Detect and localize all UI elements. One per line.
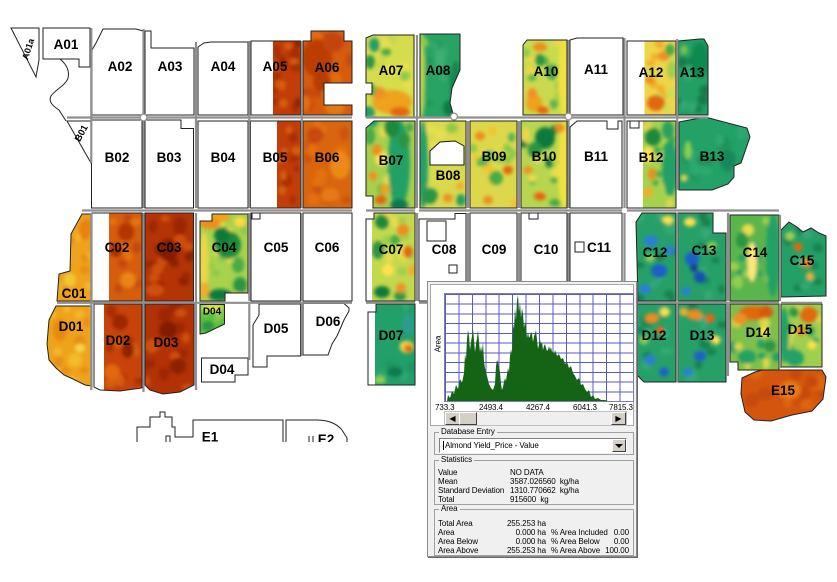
svg-text:D03: D03 (154, 335, 179, 350)
svg-text:D01: D01 (59, 319, 84, 334)
svg-text:D04: D04 (210, 362, 235, 377)
svg-text:D14: D14 (746, 325, 771, 340)
svg-text:D12: D12 (642, 328, 667, 343)
svg-text:C13: C13 (692, 243, 717, 258)
svg-text:C09: C09 (482, 242, 507, 257)
svg-text:C15: C15 (790, 253, 815, 268)
svg-text:D04: D04 (203, 307, 222, 318)
svg-text:D07: D07 (379, 328, 404, 343)
svg-text:D02: D02 (106, 333, 131, 348)
svg-text:A10: A10 (534, 64, 559, 79)
svg-text:C07: C07 (379, 242, 404, 257)
svg-text:A05: A05 (263, 59, 288, 74)
svg-text:C05: C05 (264, 240, 289, 255)
svg-text:A13: A13 (680, 65, 705, 80)
svg-text:C08: C08 (432, 242, 457, 257)
svg-text:E15: E15 (771, 383, 796, 398)
svg-text:D06: D06 (316, 314, 341, 329)
svg-text:B09: B09 (482, 149, 507, 164)
svg-text:B08: B08 (436, 168, 461, 183)
svg-text:C03: C03 (157, 240, 182, 255)
svg-text:C02: C02 (105, 240, 130, 255)
svg-text:C04: C04 (212, 240, 237, 255)
svg-text:E1: E1 (202, 430, 219, 445)
svg-text:B07: B07 (379, 153, 404, 168)
svg-text:B02: B02 (105, 150, 130, 165)
svg-text:C06: C06 (315, 240, 340, 255)
svg-text:A08: A08 (426, 63, 451, 78)
svg-text:C11: C11 (587, 240, 612, 255)
svg-text:A02: A02 (108, 59, 133, 74)
svg-text:A03: A03 (158, 59, 183, 74)
svg-text:D15: D15 (788, 322, 813, 337)
svg-text:A06: A06 (315, 60, 340, 75)
svg-text:C01: C01 (62, 286, 87, 301)
svg-text:A07: A07 (379, 63, 404, 78)
svg-text:C14: C14 (743, 245, 768, 260)
svg-text:B04: B04 (211, 150, 236, 165)
svg-text:D05: D05 (264, 321, 289, 336)
svg-text:C10: C10 (534, 242, 559, 257)
svg-text:D13: D13 (690, 328, 715, 343)
svg-text:B10: B10 (532, 149, 557, 164)
svg-text:B13: B13 (700, 149, 725, 164)
svg-text:A04: A04 (211, 59, 236, 74)
svg-text:B06: B06 (315, 150, 340, 165)
svg-text:A12: A12 (639, 65, 664, 80)
svg-text:A01: A01 (54, 37, 79, 52)
svg-text:A11: A11 (584, 62, 609, 77)
svg-text:E2: E2 (318, 432, 335, 447)
svg-text:C12: C12 (643, 245, 668, 260)
svg-text:B11: B11 (584, 149, 609, 164)
svg-text:B03: B03 (157, 150, 182, 165)
svg-text:B12: B12 (639, 150, 664, 165)
svg-text:B05: B05 (263, 150, 288, 165)
